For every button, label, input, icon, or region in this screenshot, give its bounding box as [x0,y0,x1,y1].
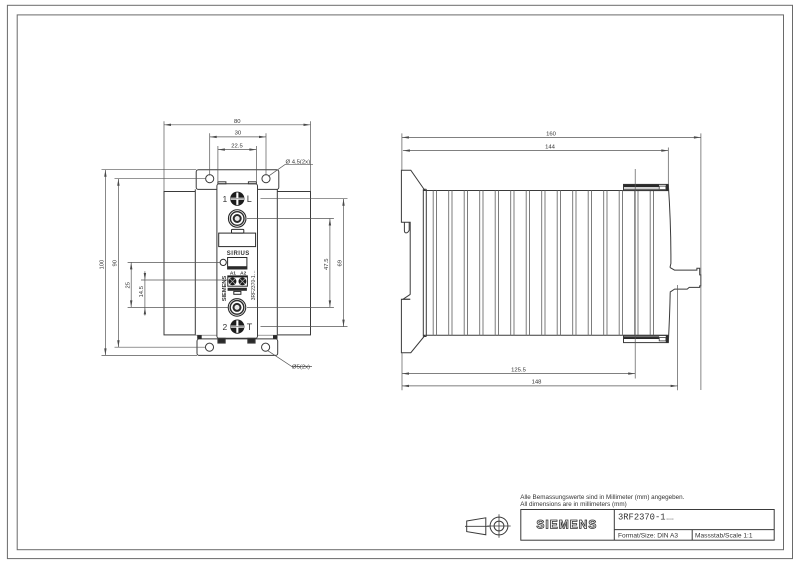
svg-text:L: L [247,194,252,204]
svg-text:Ø 4.5(2x): Ø 4.5(2x) [286,160,311,166]
svg-text:Ø5(2x): Ø5(2x) [292,365,310,371]
svg-text:Massstab/Scale 1:1: Massstab/Scale 1:1 [695,533,753,540]
svg-text:T: T [247,322,253,332]
svg-text:69: 69 [338,260,344,267]
svg-text:25: 25 [125,281,131,288]
svg-text:3RF2370-1…: 3RF2370-1… [251,270,257,300]
svg-text:3RF2370-1: 3RF2370-1 [618,512,666,522]
svg-text:125.5: 125.5 [511,367,526,373]
svg-text:....: .... [666,512,674,521]
svg-text:SIRIUS: SIRIUS [227,251,250,257]
svg-text:90: 90 [113,259,119,266]
svg-text:47.5: 47.5 [324,258,330,270]
svg-text:14.5: 14.5 [139,285,145,297]
svg-text:148: 148 [532,380,543,386]
svg-text:80: 80 [234,119,241,125]
svg-text:160: 160 [546,131,557,137]
svg-text:Alle Bemassungswerte sind in M: Alle Bemassungswerte sind in Millimeter … [520,494,684,501]
svg-text:SIEMENS: SIEMENS [222,276,228,302]
svg-text:SIEMENS: SIEMENS [536,517,597,531]
svg-text:1: 1 [222,194,227,204]
svg-text:2: 2 [222,322,227,332]
svg-text:144: 144 [545,144,556,150]
svg-text:100: 100 [100,259,106,270]
svg-text:All dimensions are in millimet: All dimensions are in millimeters (mm) [520,501,626,508]
svg-text:Format/Size: DIN A3: Format/Size: DIN A3 [618,533,678,540]
svg-text:30: 30 [235,131,242,137]
svg-text:22.5: 22.5 [231,143,243,149]
